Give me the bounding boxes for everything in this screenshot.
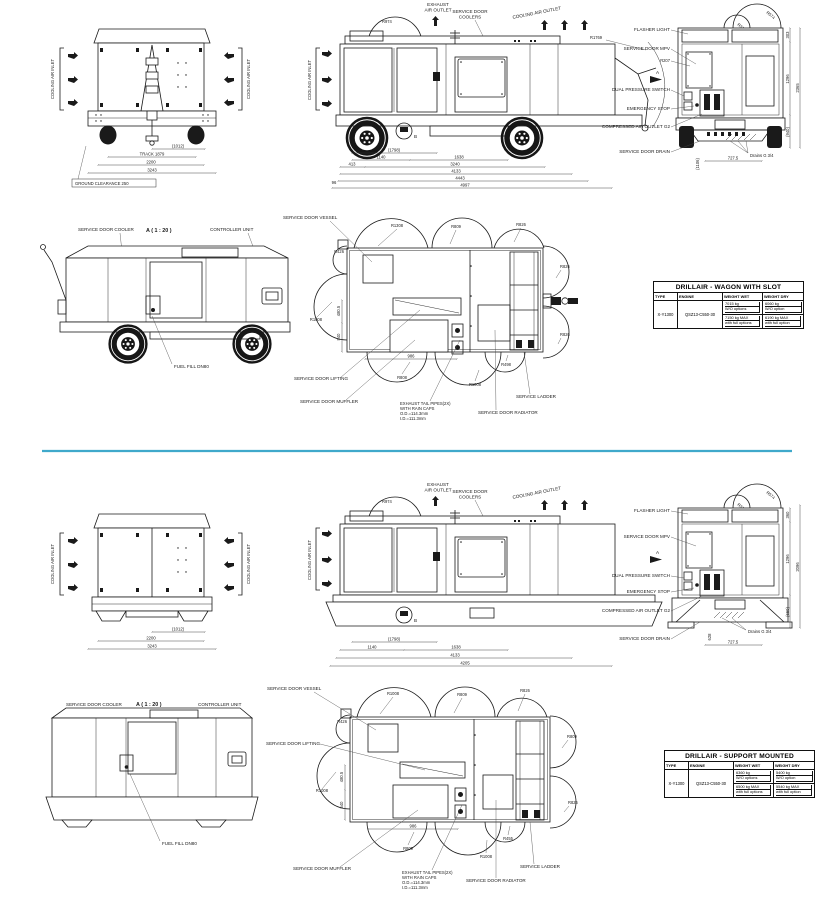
service-door-radiator-label: SERVICE DOOR RADIATOR — [478, 410, 538, 415]
cooling-air-outlet-label: COOLING AIR OUTLET — [512, 486, 562, 500]
col-header-weight-wet: WEIGHT WET — [734, 762, 774, 770]
sheet2-side-view: R974 EXHAUST AIR OUTLET COOLING AIR OUTL… — [307, 482, 662, 666]
exhaust-tail-pipes-label4: I.D.=111.3mm — [402, 885, 428, 890]
dim-label: (1798) — [388, 637, 401, 642]
col-header-engine: ENGINE — [678, 293, 723, 301]
dim-label: 4205 — [460, 661, 470, 666]
service-door-coolers-label: SERVICE DOOR — [452, 489, 488, 494]
dim-label: 1296 — [785, 554, 790, 564]
col-header-weight-dry: WEIGHT DRY — [774, 762, 815, 770]
flasher-light-label: FLASHER LIGHT — [634, 508, 670, 513]
cooling-air-inlet-label: COOLING AIR INLET — [50, 58, 55, 99]
dim-label: 413 — [349, 162, 357, 167]
dim-label: 480.5 — [336, 305, 341, 316]
weight-dry-max: 6190 kg MAXwith full option — [763, 315, 804, 328]
radius-label: R1308 — [391, 223, 404, 228]
flasher-light-label: FLASHER LIGHT — [634, 27, 670, 32]
sheet1-front-view: COOLING AIR INLET COOLING AIR INLET (101… — [50, 29, 251, 187]
service-door-cooler-label: SERVICE DOOR COOLER — [78, 227, 135, 232]
col-header-weight-wet: WEIGHT WET — [723, 293, 763, 301]
airflow-arrow-icon — [316, 48, 332, 110]
dim-label: (1012) — [172, 144, 185, 149]
exhaust-tail-pipes-label4: I.D.=111.3mm — [400, 416, 426, 421]
detail-b-marker: B — [414, 618, 417, 623]
col-header-engine: ENGINE — [689, 762, 734, 770]
weight-dry-base: 6060 kgW/O option — [763, 301, 804, 315]
service-door-lifting-label: SERVICE DOOR LIFTING — [266, 741, 320, 746]
dim-label: 628 — [707, 633, 712, 641]
radius-label: R808 — [397, 375, 408, 380]
weight-wet-max: 7150 kg MAXwith full options — [723, 315, 763, 328]
service-ladder-label: SERVICE LADDER — [520, 864, 561, 869]
cooling-air-inlet-label: COOLING AIR INLET — [307, 59, 312, 100]
ground-clearance-label: GROUND CLEARANCE 250 — [75, 181, 129, 186]
dim-label: 3240 — [450, 162, 460, 167]
sheet1-plan-view: R1308 R809 R826 R826 R1008 R808 R1008 R4… — [283, 215, 578, 421]
radius-label: R826 — [568, 800, 579, 805]
dim-label: (1106) — [695, 157, 700, 169]
section-a-marker: A — [656, 70, 660, 75]
radius-label: R826 — [520, 688, 531, 693]
type-value: X-Y1300 — [654, 301, 678, 328]
dim-label: 1638 — [454, 155, 464, 160]
dim-label: 2200 — [146, 160, 156, 165]
spec-table-title: DRILLAIR - SUPPORT MOUNTED — [665, 751, 814, 762]
dim-label: 2365 — [795, 83, 800, 93]
service-door-drain-label: SERVICE DOOR DRAIN — [619, 149, 670, 154]
fuel-fill-label: FUEL FILL DN80 — [174, 364, 209, 369]
service-door-vessel-label: SERVICE DOOR VESSEL — [283, 215, 338, 220]
detail-title: A ( 1 : 20 ) — [146, 228, 172, 234]
compressed-air-outlet-label: COMPRESSED AIR OUTLET G2 — [602, 608, 671, 613]
dim-label: 727.5 — [728, 156, 739, 161]
sheet1-detail-a-view: SERVICE DOOR COOLER A ( 1 : 20 ) CONTROL… — [41, 227, 291, 369]
drains-label: Drains G 3/4 — [748, 629, 772, 634]
col-header-weight-dry: WEIGHT DRY — [763, 293, 804, 301]
section-a-marker: A — [656, 550, 660, 555]
radius-label: R826 — [560, 332, 571, 337]
radius-label: R809 — [403, 846, 414, 851]
radius-label: R1769 — [590, 35, 603, 40]
dim-label: 96 — [332, 180, 337, 185]
weight-wet-base: 6360 kgW/O options — [734, 770, 774, 784]
sheet2-detail-a-view: SERVICE DOOR COOLER A ( 1 : 20 ) CONTROL… — [46, 702, 258, 846]
service-door-lifting-label: SERVICE DOOR LIFTING — [294, 376, 348, 381]
emergency-stop-label: EMERGENCY STOP — [627, 106, 670, 111]
radius-label: R826 — [516, 222, 527, 227]
dim-label: 540 — [336, 333, 341, 341]
service-door-muffler-label: SERVICE DOOR MUFFLER — [293, 866, 352, 871]
dim-label: 727.5 — [728, 640, 739, 645]
radius-label: R455 — [503, 836, 514, 841]
radius-label: R426 — [334, 249, 345, 254]
dim-label: 1140 — [376, 155, 386, 160]
radius-label: R809 — [451, 224, 462, 229]
engine-value: QSZ13-C550-30 — [678, 301, 723, 328]
dim-label: 2096 — [795, 562, 800, 572]
service-door-mpv-label: SERVICE DOOR MPV — [624, 534, 671, 539]
dim-label: 360 — [785, 511, 790, 519]
radius-label: R426 — [337, 719, 348, 724]
exhaust-air-outlet-label2: AIR OUTLET — [424, 488, 451, 493]
dim-label: 1638 — [451, 645, 461, 650]
service-door-radiator-label: SERVICE DOOR RADIATOR — [466, 878, 526, 883]
radius-label: R974 — [382, 499, 393, 504]
radius-label: R809 — [567, 734, 578, 739]
spec-table-wagon: DRILLAIR - WAGON WITH SLOT TYPE ENGINE W… — [653, 281, 804, 329]
radius-label: R207 — [660, 58, 671, 63]
radius-label: R498 — [501, 362, 512, 367]
weight-wet-max: 6500 kg MAXwith full options — [734, 784, 774, 797]
radius-label: R1008 — [469, 382, 482, 387]
dim-label: 3243 — [147, 168, 157, 173]
dim-label: (650) — [785, 607, 790, 617]
service-door-cooler-label: SERVICE DOOR COOLER — [66, 702, 123, 707]
col-header-type: TYPE — [665, 762, 689, 770]
fuel-fill-label: FUEL FILL DN80 — [162, 841, 197, 846]
cooling-air-outlet-label: COOLING AIR OUTLET — [512, 6, 562, 20]
radius-label: R1008 — [480, 854, 493, 859]
dim-label: 4443 — [455, 176, 465, 181]
dim-label: 4997 — [460, 183, 470, 188]
spec-table-title: DRILLAIR - WAGON WITH SLOT — [654, 282, 803, 293]
weight-dry-max: 5540 kg MAXwith full option — [774, 784, 815, 797]
controller-unit-label: CONTROLLER UNIT — [198, 702, 242, 707]
service-door-mpv-label: SERVICE DOOR MPV — [624, 46, 671, 51]
exhaust-air-outlet-label2: AIR OUTLET — [424, 8, 451, 13]
service-ladder-label: SERVICE LADDER — [516, 394, 557, 399]
cooling-air-inlet-label: COOLING AIR INLET — [246, 58, 251, 99]
dim-label: 4133 — [450, 653, 460, 658]
dim-label: 986 — [408, 354, 416, 359]
type-value: X-Y1300 — [665, 770, 689, 797]
cooling-air-inlet-label: COOLING AIR INLET — [246, 543, 251, 584]
dim-label: 4133 — [451, 169, 461, 174]
service-door-coolers-label2: COOLERS — [459, 15, 481, 20]
airflow-arrow-icon — [316, 528, 332, 590]
radius-label: R1008 — [387, 691, 400, 696]
exhaust-arrow-icon — [432, 496, 439, 506]
service-door-coolers-label2: COOLERS — [459, 495, 481, 500]
dim-label: 480.5 — [339, 771, 344, 782]
service-door-vessel-label: SERVICE DOOR VESSEL — [267, 686, 322, 691]
dim-label: 303 — [785, 31, 790, 39]
spec-table-support: DRILLAIR - SUPPORT MOUNTED TYPE ENGINE W… — [664, 750, 815, 798]
exhaust-air-outlet-label: EXHAUST — [427, 482, 449, 487]
weight-dry-base: 5400 kgW/O option — [774, 770, 815, 784]
dim-label: 1296 — [785, 74, 790, 84]
dual-pressure-switch-label: DUAL PRESSURE SWITCH — [612, 87, 670, 92]
engine-value: QSZ13-C550-30 — [689, 770, 734, 797]
radius-label: R809 — [457, 692, 468, 697]
service-door-muffler-label: SERVICE DOOR MUFFLER — [300, 399, 359, 404]
dim-label: (1012) — [172, 627, 185, 632]
service-door-drain-label: SERVICE DOOR DRAIN — [619, 636, 670, 641]
dim-label: 1140 — [367, 645, 377, 650]
sheet2-front-view: COOLING AIR INLET COOLING AIR INLET (101… — [50, 514, 251, 649]
emergency-stop-label: EMERGENCY STOP — [627, 589, 670, 594]
drains-label: Drains G 3/4 — [750, 153, 774, 158]
detail-b-marker: B — [414, 134, 417, 139]
exhaust-air-outlet-label: EXHAUST — [427, 2, 449, 7]
sheet1-rear-view: R314 R574 A Drains G 3/4 FLASHER LIGHT S… — [602, 4, 800, 170]
weight-wet-base: 7015 kgW/O options — [723, 301, 763, 315]
dim-label: 540 — [339, 801, 344, 809]
sheet2-plan-view: R1008 R809 R826 R809 R1008 R809 R1008 R4… — [266, 686, 579, 890]
radius-label: R826 — [560, 264, 571, 269]
exhaust-arrow-icon — [432, 16, 439, 26]
dim-label: (1798) — [388, 148, 401, 153]
dim-label: TRACK 1879 — [140, 152, 165, 157]
col-header-type: TYPE — [654, 293, 678, 301]
detail-title: A ( 1 : 20 ) — [136, 702, 162, 708]
dual-pressure-switch-label: DUAL PRESSURE SWITCH — [612, 573, 670, 578]
sheet1-side-view: R974 EXHAUST AIR OUTLET COOLING AIR OUTL… — [307, 2, 665, 188]
dim-label: 2200 — [146, 636, 156, 641]
dim-label: 986 — [410, 824, 418, 829]
engineering-drawing-page: COOLING AIR INLET COOLING AIR INLET (101… — [0, 0, 832, 898]
service-door-coolers-label: SERVICE DOOR — [452, 9, 488, 14]
cooling-air-inlet-label: COOLING AIR INLET — [307, 539, 312, 580]
dim-label: (940) — [785, 127, 790, 137]
controller-unit-label: CONTROLLER UNIT — [210, 227, 254, 232]
dim-label: 3243 — [147, 644, 157, 649]
compressed-air-outlet-label: COMPRESSED AIR OUTLET G2 — [602, 124, 671, 129]
radius-label: R974 — [382, 19, 393, 24]
cooling-air-inlet-label: COOLING AIR INLET — [50, 543, 55, 584]
